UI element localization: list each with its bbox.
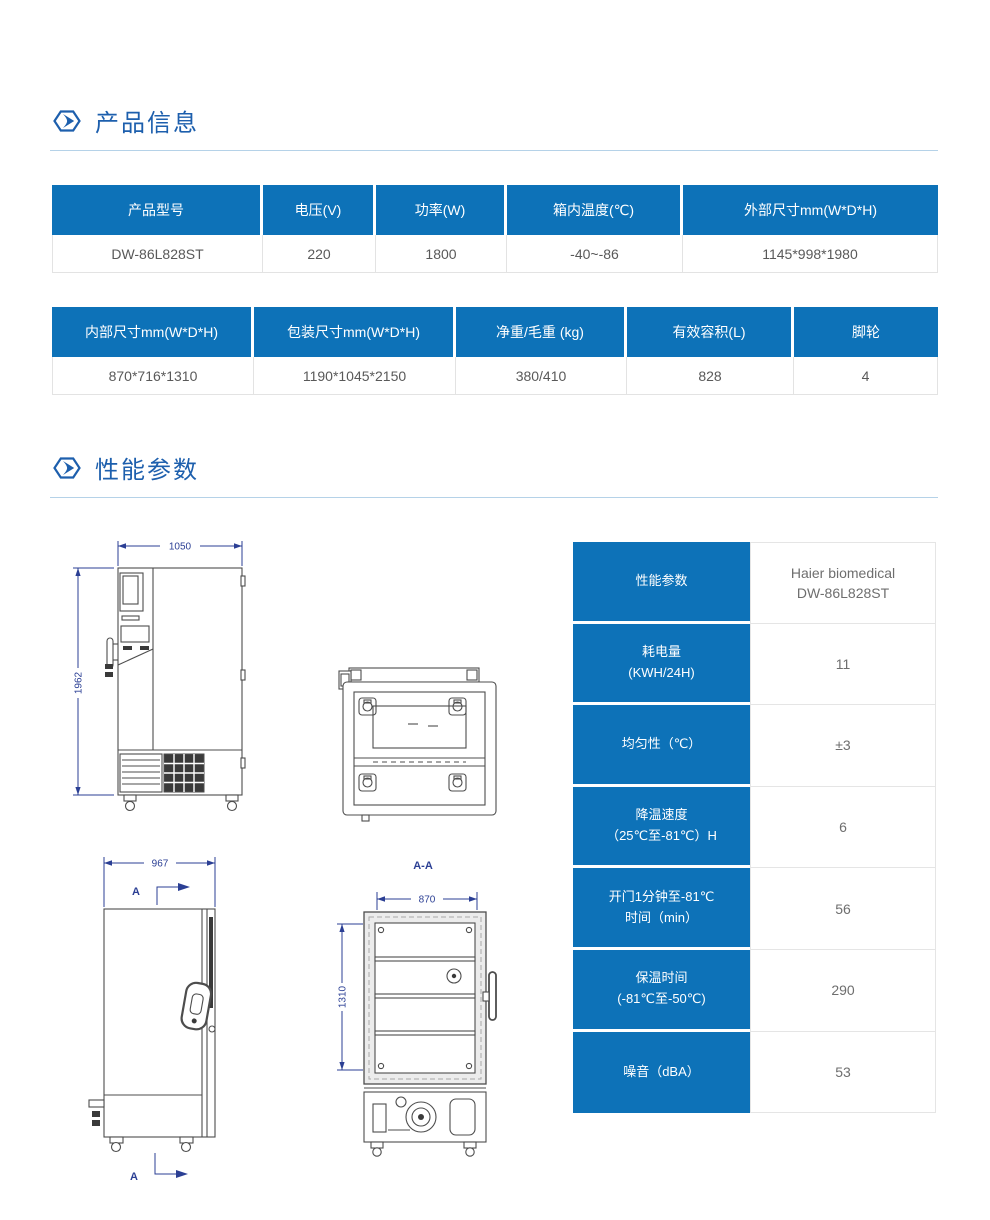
section-view-title: A-A — [413, 860, 433, 872]
perf-row-label-door-open-recovery: 开门1分钟至-81℃ 时间（min） — [573, 868, 750, 950]
cell-volume: 828 — [627, 357, 794, 395]
product-spec-table-2: 内部尺寸mm(W*D*H) 包装尺寸mm(W*D*H) 净重/毛重 (kg) 有… — [52, 307, 938, 395]
cell-voltage: 220 — [263, 235, 376, 273]
cell-casters: 4 — [794, 357, 938, 395]
side-view-drawing: 967 A A — [72, 843, 292, 1188]
top-view-drawing — [333, 662, 508, 822]
perf-header-label: 性能参数 — [573, 542, 750, 624]
perf-row-value-uniformity: ±3 — [750, 705, 936, 787]
spec-table-2-header-row: 内部尺寸mm(W*D*H) 包装尺寸mm(W*D*H) 净重/毛重 (kg) 有… — [52, 307, 938, 357]
perf-row-value-noise: 53 — [750, 1032, 936, 1114]
column-header-temperature: 箱内温度(℃) — [507, 185, 683, 235]
section-aa-drawing: A-A 870 1310 — [318, 852, 546, 1170]
cell-weight: 380/410 — [456, 357, 627, 395]
dimension-label-inner-width: 870 — [419, 895, 436, 906]
column-header-casters: 脚轮 — [794, 307, 938, 357]
section-divider — [50, 150, 938, 151]
section-hex-arrow-icon — [50, 454, 82, 482]
front-view-drawing: 1050 1962 — [60, 532, 322, 820]
section-divider — [50, 497, 938, 498]
perf-header-value: Haier biomedical DW-86L828ST — [750, 542, 936, 624]
section-title-performance: 性能参数 — [95, 450, 199, 485]
dimension-label-depth: 967 — [152, 859, 169, 870]
perf-row-label-uniformity: 均匀性（℃） — [573, 705, 750, 787]
perf-row-label-power-consumption: 耗电量 (KWH/24H) — [573, 624, 750, 706]
spec-table-1-header-row: 产品型号 电压(V) 功率(W) 箱内温度(℃) 外部尺寸mm(W*D*H) — [52, 185, 938, 235]
spec-table-2-data-row: 870*716*1310 1190*1045*2150 380/410 828 … — [52, 357, 938, 395]
cell-temperature: -40~-86 — [507, 235, 683, 273]
dimension-label-height: 1962 — [74, 671, 85, 694]
cell-internal-size: 870*716*1310 — [52, 357, 254, 395]
cell-external-size: 1145*998*1980 — [683, 235, 938, 273]
dimension-label-inner-height: 1310 — [338, 985, 349, 1008]
section-title-product-info: 产品信息 — [95, 103, 199, 138]
spec-table-1-data-row: DW-86L828ST 220 1800 -40~-86 1145*998*19… — [52, 235, 938, 273]
column-header-external-size: 外部尺寸mm(W*D*H) — [683, 185, 938, 235]
perf-row-value-warmup-time: 290 — [750, 950, 936, 1032]
cell-power: 1800 — [376, 235, 507, 273]
column-header-voltage: 电压(V) — [263, 185, 376, 235]
perf-row-label-warmup-time: 保温时间 (-81℃至-50℃) — [573, 950, 750, 1032]
performance-section-header: 性能参数 — [50, 450, 199, 485]
section-marker-a-top: A — [132, 886, 140, 898]
column-header-power: 功率(W) — [376, 185, 507, 235]
product-spec-page: 产品信息 产品型号 电压(V) 功率(W) 箱内温度(℃) 外部尺寸mm(W*D… — [0, 0, 990, 1220]
column-header-internal-size: 内部尺寸mm(W*D*H) — [52, 307, 254, 357]
perf-row-value-cooldown-speed: 6 — [750, 787, 936, 869]
column-header-model: 产品型号 — [52, 185, 263, 235]
dimension-label-width: 1050 — [169, 542, 192, 553]
perf-row-label-cooldown-speed: 降温速度 （25℃至-81℃）H — [573, 787, 750, 869]
column-header-package-size: 包装尺寸mm(W*D*H) — [254, 307, 456, 357]
column-header-weight: 净重/毛重 (kg) — [456, 307, 627, 357]
product-info-section-header: 产品信息 — [50, 103, 199, 138]
column-header-volume: 有效容积(L) — [627, 307, 794, 357]
cell-model: DW-86L828ST — [52, 235, 263, 273]
cell-package-size: 1190*1045*2150 — [254, 357, 456, 395]
perf-row-label-noise: 噪音（dBA） — [573, 1032, 750, 1114]
performance-table: 性能参数 Haier biomedical DW-86L828ST 耗电量 (K… — [573, 542, 936, 1113]
section-hex-arrow-icon — [50, 107, 82, 135]
product-spec-table-1: 产品型号 电压(V) 功率(W) 箱内温度(℃) 外部尺寸mm(W*D*H) D… — [52, 185, 938, 273]
section-marker-a-bottom: A — [130, 1171, 138, 1183]
perf-row-value-door-open-recovery: 56 — [750, 868, 936, 950]
perf-row-value-power-consumption: 11 — [750, 624, 936, 706]
